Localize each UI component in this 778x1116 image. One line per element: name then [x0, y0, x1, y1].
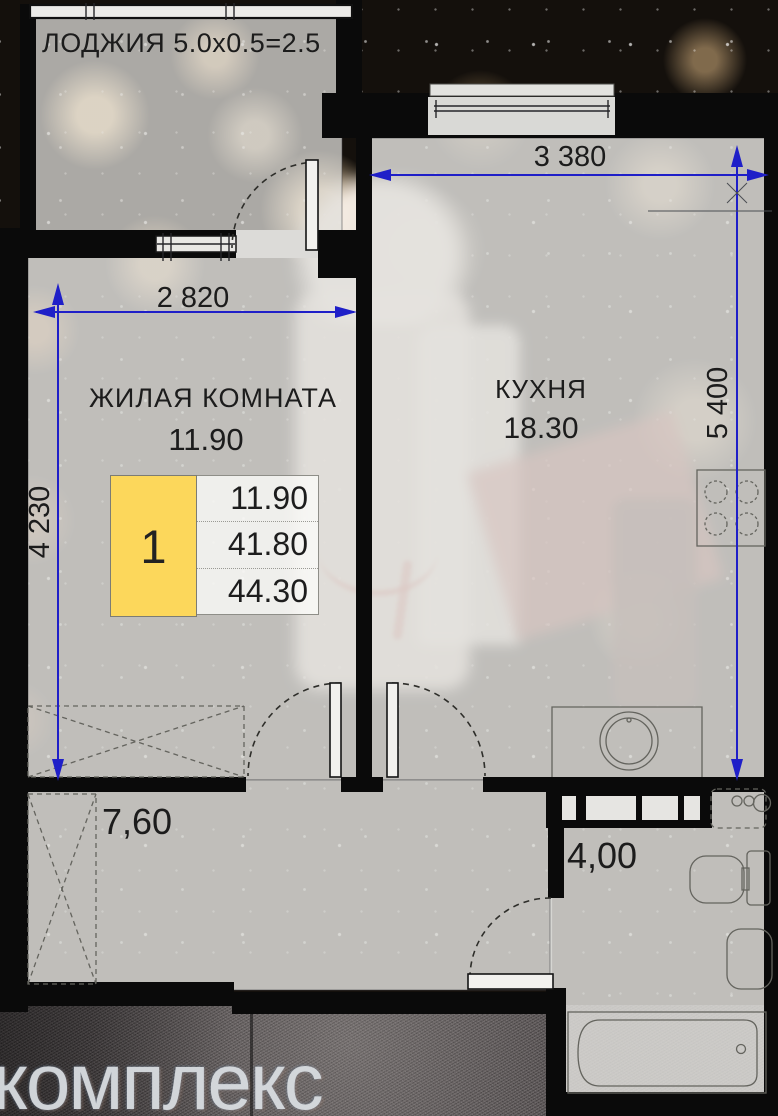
dim-label-living-depth: 4 230: [24, 452, 56, 592]
living-room-area: 11.90: [106, 422, 306, 458]
vent-hole: [562, 796, 576, 820]
unit-number-cell: 1: [110, 475, 197, 617]
bathroom-bottom-wall: [546, 1092, 778, 1116]
dim-label-living-width: 2 820: [93, 282, 293, 315]
area-without-loggia-value: 41.80: [197, 521, 318, 567]
right-outer-wall: [764, 93, 778, 1116]
vent-hole: [684, 796, 700, 820]
kitchen-door-leaf: [387, 683, 398, 777]
unit-areas-table: 11.90 41.80 44.30: [197, 475, 319, 615]
apartment-floor-plan: ЛОДЖИЯ 5.0x0.5=2.5 ЖИЛАЯ КОМНАТА 11.90 К…: [0, 0, 778, 1116]
kitchen-window-sill: [430, 84, 614, 96]
kitchen-area: 18.30: [441, 412, 641, 446]
loggia-label: ЛОДЖИЯ 5.0x0.5=2.5: [42, 28, 321, 59]
living-room-bottom-wall: [28, 777, 246, 792]
bathroom-door-leaf: [468, 974, 553, 989]
living-kitchen-partition: [356, 138, 372, 792]
unit-legend: 1 11.90 41.80 44.30: [110, 475, 319, 617]
hallway-bottom-wall-right: [232, 992, 548, 1014]
kitchen-name: КУХНЯ: [441, 374, 641, 405]
hallway-bottom-wall-left: [16, 982, 234, 1006]
living-room-door-leaf: [330, 683, 341, 777]
bathroom-area: 4,00: [567, 835, 637, 877]
partition-base-stub: [341, 777, 383, 792]
living-area-value: 11.90: [197, 476, 318, 521]
loggia-left-wall: [20, 4, 36, 254]
hallway-area: 7,60: [102, 801, 172, 843]
developer-watermark: комплекс: [0, 1036, 322, 1116]
left-outer-wall: [0, 228, 28, 1012]
kitchen-bottom-wall: [483, 777, 768, 792]
balcony-door-leaf: [306, 160, 318, 250]
total-area-value: 44.30: [197, 568, 318, 614]
vent-hole: [586, 796, 636, 820]
dim-label-kitchen-depth: 5 400: [702, 333, 734, 473]
living-room-name: ЖИЛАЯ КОМНАТА: [63, 383, 363, 414]
vent-hole: [642, 796, 678, 820]
kitchen-window: [428, 97, 615, 135]
dim-label-kitchen-width: 3 380: [470, 141, 670, 174]
vent-shaft: [546, 790, 712, 828]
loggia-glazing-band: [30, 5, 352, 18]
